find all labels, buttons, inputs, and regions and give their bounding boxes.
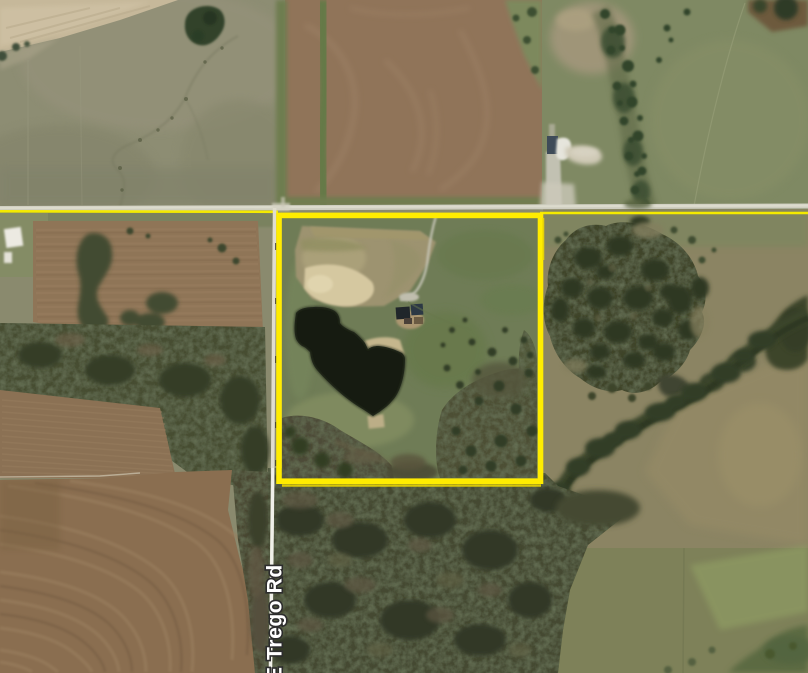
svg-text:E Trego Rd: E Trego Rd: [264, 564, 287, 673]
